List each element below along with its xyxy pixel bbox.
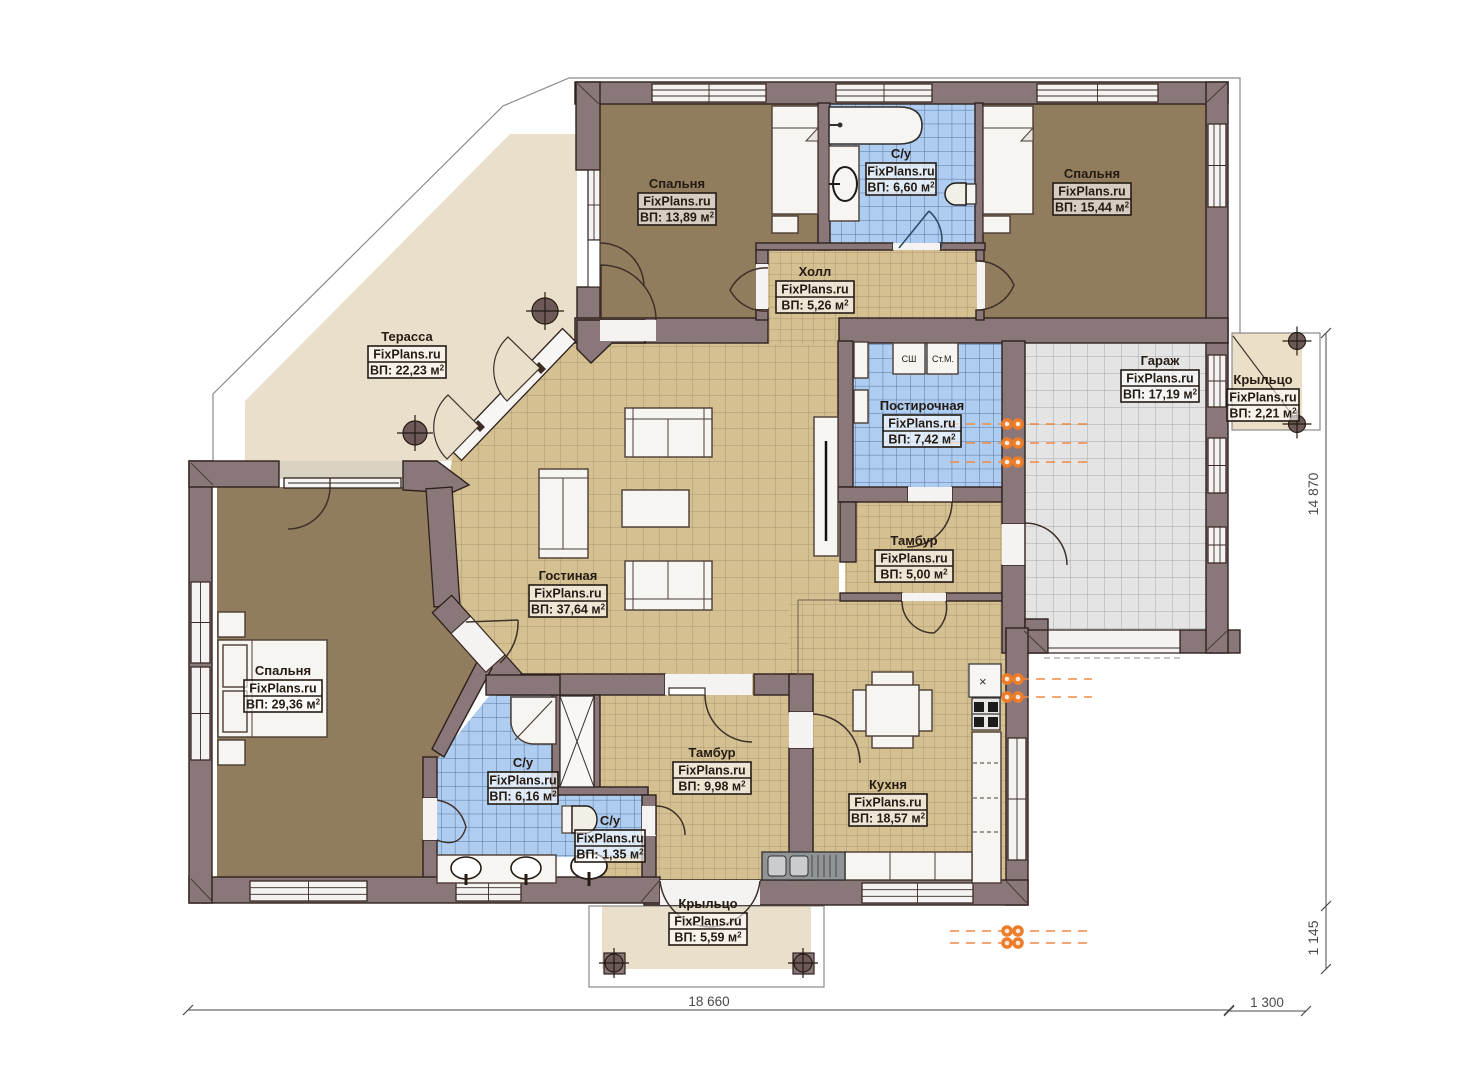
svg-text:×: × <box>979 674 987 689</box>
svg-text:Гараж: Гараж <box>1141 353 1181 368</box>
svg-text:FixPlans.ru: FixPlans.ru <box>888 417 955 431</box>
svg-text:СШ: СШ <box>902 354 917 364</box>
svg-text:1 300: 1 300 <box>1250 995 1284 1010</box>
svg-text:FixPlans.ru: FixPlans.ru <box>854 796 921 810</box>
svg-text:FixPlans.ru: FixPlans.ru <box>534 587 601 601</box>
svg-text:ВП: 5,59 м2: ВП: 5,59 м2 <box>674 931 742 945</box>
svg-text:FixPlans.ru: FixPlans.ru <box>249 682 316 696</box>
svg-text:Холл: Холл <box>799 264 832 279</box>
svg-text:Спальня: Спальня <box>255 663 311 678</box>
svg-text:ВП: 22,23 м2: ВП: 22,23 м2 <box>370 364 445 378</box>
svg-text:Крыльцо: Крыльцо <box>1233 372 1292 387</box>
svg-text:FixPlans.ru: FixPlans.ru <box>1058 185 1125 199</box>
svg-text:С/у: С/у <box>891 146 912 161</box>
svg-text:С/у: С/у <box>513 755 534 770</box>
svg-text:FixPlans.ru: FixPlans.ru <box>576 832 643 846</box>
svg-text:ВП: 7,42 м2: ВП: 7,42 м2 <box>888 433 956 447</box>
svg-text:ВП: 15,44 м2: ВП: 15,44 м2 <box>1055 201 1130 215</box>
svg-text:FixPlans.ru: FixPlans.ru <box>674 915 741 929</box>
svg-text:FixPlans.ru: FixPlans.ru <box>489 774 556 788</box>
svg-text:ВП: 6,16 м2: ВП: 6,16 м2 <box>489 790 557 804</box>
svg-text:FixPlans.ru: FixPlans.ru <box>880 552 947 566</box>
svg-text:FixPlans.ru: FixPlans.ru <box>867 165 934 179</box>
svg-text:Тамбур: Тамбур <box>890 533 937 548</box>
svg-text:Спальня: Спальня <box>1064 166 1120 181</box>
svg-text:Спальня: Спальня <box>649 176 705 191</box>
svg-text:ВП: 9,98 м2: ВП: 9,98 м2 <box>678 780 746 794</box>
svg-text:ВП: 6,60 м2: ВП: 6,60 м2 <box>867 181 935 195</box>
svg-text:Ст.М.: Ст.М. <box>932 354 954 364</box>
svg-text:1 145: 1 145 <box>1305 920 1321 955</box>
svg-text:Терасса: Терасса <box>381 329 433 344</box>
svg-text:ВП: 13,89 м2: ВП: 13,89 м2 <box>640 211 715 225</box>
svg-text:ВП: 5,26 м2: ВП: 5,26 м2 <box>781 299 849 313</box>
svg-text:ВП: 17,19 м2: ВП: 17,19 м2 <box>1123 388 1198 402</box>
svg-text:ВП: 18,57 м2: ВП: 18,57 м2 <box>851 812 926 826</box>
svg-text:Кухня: Кухня <box>869 777 907 792</box>
svg-text:Постирочная: Постирочная <box>880 398 964 413</box>
svg-text:14 870: 14 870 <box>1305 472 1321 515</box>
svg-text:ВП: 2,21 м2: ВП: 2,21 м2 <box>1229 407 1297 421</box>
svg-text:FixPlans.ru: FixPlans.ru <box>1126 372 1193 386</box>
svg-text:FixPlans.ru: FixPlans.ru <box>1229 391 1296 405</box>
svg-text:Тамбур: Тамбур <box>688 745 735 760</box>
svg-text:FixPlans.ru: FixPlans.ru <box>643 195 710 209</box>
svg-text:FixPlans.ru: FixPlans.ru <box>781 283 848 297</box>
svg-text:Крыльцо: Крыльцо <box>678 896 737 911</box>
svg-text:18 660: 18 660 <box>688 994 729 1009</box>
svg-text:ВП: 1,35 м2: ВП: 1,35 м2 <box>576 848 644 862</box>
svg-text:ВП: 37,64 м2: ВП: 37,64 м2 <box>531 603 606 617</box>
svg-text:С/у: С/у <box>600 813 621 828</box>
svg-text:ВП: 5,00 м2: ВП: 5,00 м2 <box>880 568 948 582</box>
svg-text:Гостиная: Гостиная <box>539 568 598 583</box>
svg-text:FixPlans.ru: FixPlans.ru <box>373 348 440 362</box>
svg-text:ВП: 29,36 м2: ВП: 29,36 м2 <box>246 698 321 712</box>
svg-text:FixPlans.ru: FixPlans.ru <box>678 764 745 778</box>
